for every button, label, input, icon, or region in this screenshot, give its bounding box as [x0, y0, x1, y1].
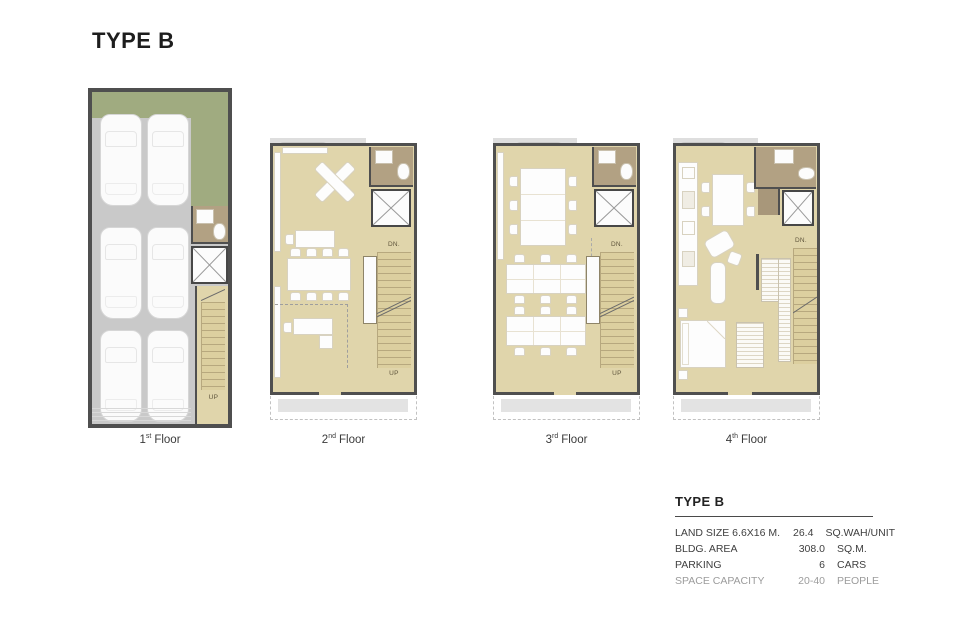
- elevator: [782, 190, 814, 226]
- floor-ordinal: rd: [552, 433, 558, 440]
- spec-unit: CARS: [837, 557, 866, 573]
- sink: [774, 149, 794, 164]
- shelf-unit: [761, 258, 779, 302]
- elevator: [191, 246, 228, 284]
- dining-table: [712, 174, 744, 226]
- stair-up-label: UP: [377, 370, 411, 377]
- counter: [282, 147, 328, 154]
- door-opening: [319, 391, 341, 395]
- car: [100, 227, 142, 319]
- bed: [680, 320, 726, 368]
- floor-plan-1st: UP: [88, 88, 232, 428]
- pillow: [682, 323, 689, 365]
- door-opening: [554, 391, 576, 395]
- door-opening: [728, 391, 752, 395]
- floor-label-1st: 1stFloor: [88, 433, 232, 448]
- floor-word: Floor: [154, 434, 180, 446]
- sink: [196, 209, 214, 224]
- desk: [293, 318, 333, 335]
- driveway-hatch: [92, 408, 191, 424]
- elevator: [371, 189, 411, 227]
- workstation-bench: [506, 316, 586, 346]
- floor-word: Floor: [339, 434, 365, 446]
- chair: [568, 200, 577, 211]
- elevator-x-icon: [373, 191, 409, 225]
- stair-landing: [363, 256, 377, 324]
- stair-landing: [586, 256, 600, 324]
- chair: [290, 248, 301, 257]
- spec-value: 26.4: [793, 525, 813, 541]
- stair-corridor: UP: [195, 286, 228, 424]
- floor-word: Floor: [561, 434, 587, 446]
- building-outline: DN. UP: [270, 143, 417, 395]
- nightstand: [678, 308, 688, 318]
- footprint-dashed-outline: [270, 396, 417, 420]
- spec-label: BLDG. AREA: [675, 541, 793, 557]
- bathroom: [191, 206, 228, 244]
- chair: [540, 295, 551, 304]
- refrigerator: [682, 251, 695, 267]
- elevator-x-icon: [596, 191, 632, 225]
- car: [100, 114, 142, 206]
- desk-return: [319, 335, 333, 349]
- chair: [566, 254, 577, 263]
- chair: [285, 234, 294, 245]
- nightstand: [678, 370, 688, 380]
- chair: [566, 347, 577, 356]
- chair: [701, 182, 710, 193]
- spec-row-space-capacity: SPACE CAPACITY 20-40 PEOPLE: [675, 573, 880, 589]
- toilet: [798, 167, 815, 180]
- floor-plan-2nd: DN. UP: [270, 138, 417, 425]
- spec-label: LAND SIZE 6.6X16 M.: [675, 525, 793, 541]
- elevator-x-icon: [784, 192, 812, 224]
- floor-ordinal: nd: [328, 433, 336, 440]
- chair: [514, 254, 525, 263]
- spec-unit: SQ.M.: [837, 541, 867, 557]
- conference-table: [287, 258, 351, 291]
- chair: [514, 347, 525, 356]
- spec-value: 20-40: [793, 573, 825, 589]
- partition-wall: [756, 254, 759, 290]
- toilet: [397, 163, 410, 180]
- chair: [338, 248, 349, 257]
- floor-ordinal: th: [732, 433, 738, 440]
- sink: [375, 150, 393, 164]
- chair: [568, 176, 577, 187]
- chair: [509, 224, 518, 235]
- stair-down-label: DN.: [377, 241, 411, 248]
- chair: [540, 347, 551, 356]
- kitchen-counter: [678, 162, 698, 286]
- bathroom: [369, 147, 413, 187]
- footprint-dashed-outline: [673, 396, 820, 420]
- bathroom: [592, 147, 636, 187]
- spec-unit: SQ.WAH/UNIT: [825, 525, 895, 541]
- counter: [497, 152, 504, 260]
- x-shaped-table: [301, 148, 369, 216]
- stair-up-label: UP: [600, 370, 634, 377]
- stair-up-label: UP: [197, 394, 230, 401]
- chair: [322, 292, 333, 301]
- car: [147, 227, 189, 319]
- chair: [566, 295, 577, 304]
- stove: [682, 191, 695, 209]
- desk: [295, 230, 335, 248]
- spec-row-parking: PARKING 6 CARS: [675, 557, 880, 573]
- chair: [701, 206, 710, 217]
- stair-down-label: DN.: [786, 237, 816, 244]
- floor-label-3rd: 3rdFloor: [493, 433, 640, 448]
- bed-fold-line: [707, 321, 725, 339]
- spec-label: SPACE CAPACITY: [675, 573, 793, 589]
- floor-word: Floor: [741, 434, 767, 446]
- vestibule: [758, 189, 780, 215]
- toilet: [213, 223, 226, 240]
- stair-break-line: [377, 296, 411, 318]
- chair: [514, 295, 525, 304]
- chair: [338, 292, 349, 301]
- counter: [274, 152, 281, 252]
- toilet: [620, 163, 633, 180]
- chair: [509, 200, 518, 211]
- sink: [598, 150, 616, 164]
- floor-plan-3rd: DN. UP: [493, 138, 640, 425]
- stair-break-line: [793, 294, 817, 314]
- spec-title: TYPE B: [675, 494, 880, 509]
- chair: [566, 306, 577, 315]
- shelf-unit: [778, 258, 791, 362]
- meeting-table: [520, 168, 566, 246]
- ottoman: [726, 250, 743, 267]
- spec-value: 6: [793, 557, 825, 573]
- chair: [746, 206, 755, 217]
- spec-value: 308.0: [793, 541, 825, 557]
- chair: [540, 254, 551, 263]
- appliance: [682, 221, 695, 235]
- wardrobe: [736, 322, 764, 368]
- chair: [322, 248, 333, 257]
- stair-break-line: [201, 288, 225, 302]
- spec-label: PARKING: [675, 557, 793, 573]
- spec-unit: PEOPLE: [837, 573, 879, 589]
- chair: [306, 292, 317, 301]
- spec-divider: [675, 516, 873, 517]
- stairs: [201, 302, 225, 390]
- bathroom: [754, 147, 816, 189]
- building-outline: DN. UP: [493, 143, 640, 395]
- spec-table: TYPE B LAND SIZE 6.6X16 M. 26.4 SQ.WAH/U…: [675, 494, 880, 589]
- stair-down-label: DN.: [600, 241, 634, 248]
- chair: [514, 306, 525, 315]
- chair: [306, 248, 317, 257]
- chair: [290, 292, 301, 301]
- floor-label-2nd: 2ndFloor: [270, 433, 417, 448]
- chair: [283, 322, 292, 333]
- workstation-bench: [506, 264, 586, 294]
- building-outline: DN.: [673, 143, 820, 395]
- floor-plan-4th: DN.: [673, 138, 820, 425]
- dashed-zone: [275, 304, 348, 368]
- floor-plan-sheet: TYPE B UP: [0, 0, 955, 636]
- car: [147, 114, 189, 206]
- chair: [540, 306, 551, 315]
- page-title: TYPE B: [92, 28, 174, 54]
- chaise: [710, 262, 726, 304]
- landscape-area: [191, 92, 228, 206]
- chair: [568, 224, 577, 235]
- spec-row-bldg-area: BLDG. AREA 308.0 SQ.M.: [675, 541, 880, 557]
- elevator: [594, 189, 634, 227]
- kitchen-sink: [682, 167, 695, 179]
- footprint-dashed-outline: [493, 396, 640, 420]
- stair-break-line: [600, 296, 634, 318]
- floor-ordinal: st: [146, 433, 151, 440]
- floor-label-4th: 4thFloor: [673, 433, 820, 448]
- spec-row-land-size: LAND SIZE 6.6X16 M. 26.4 SQ.WAH/UNIT: [675, 525, 880, 541]
- chair: [509, 176, 518, 187]
- elevator-x-icon: [193, 248, 226, 282]
